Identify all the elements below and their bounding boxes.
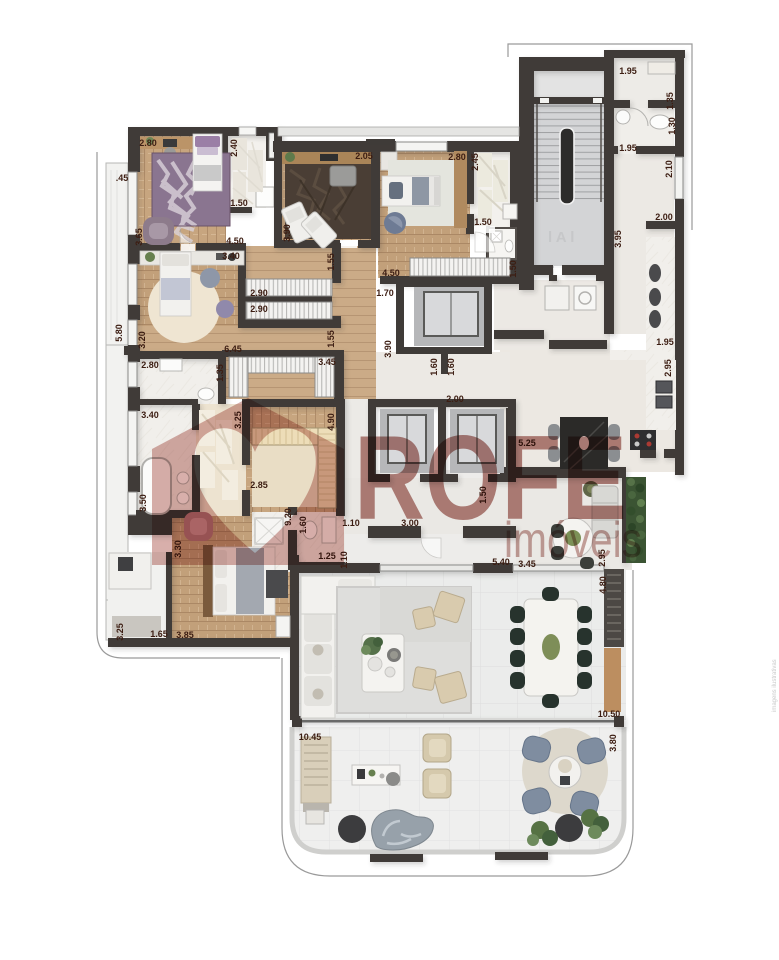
svg-text:1.55: 1.55 (326, 330, 336, 348)
svg-text:3.40: 3.40 (141, 410, 159, 420)
svg-text:1.70: 1.70 (376, 288, 394, 298)
svg-text:3.90: 3.90 (383, 340, 393, 358)
svg-text:2.80: 2.80 (139, 138, 157, 148)
svg-text:2.90: 2.90 (250, 304, 268, 314)
svg-text:2.10: 2.10 (664, 160, 674, 178)
svg-text:5.80: 5.80 (114, 324, 124, 342)
svg-text:3.45: 3.45 (318, 357, 336, 367)
svg-text:2.00: 2.00 (446, 394, 464, 404)
svg-text:2.40: 2.40 (229, 139, 239, 157)
svg-text:4.80: 4.80 (598, 576, 608, 594)
svg-text:2.90: 2.90 (250, 288, 268, 298)
svg-text:1.95: 1.95 (619, 66, 637, 76)
svg-text:2.95: 2.95 (663, 359, 673, 377)
svg-text:6.45: 6.45 (224, 344, 242, 354)
svg-text:2.80: 2.80 (448, 152, 466, 162)
svg-text:4.90: 4.90 (326, 413, 336, 431)
svg-text:3.50: 3.50 (138, 494, 148, 512)
svg-text:3.95: 3.95 (613, 230, 623, 248)
svg-text:1.55: 1.55 (326, 253, 336, 271)
svg-text:imóveis: imóveis (504, 512, 642, 568)
svg-text:10.45: 10.45 (299, 732, 322, 742)
svg-text:10.50: 10.50 (598, 709, 621, 719)
svg-text:1.60: 1.60 (429, 358, 439, 376)
svg-text:imagens ilustrativas: imagens ilustrativas (772, 659, 778, 712)
svg-text:1.95: 1.95 (619, 143, 637, 153)
svg-text:1.35: 1.35 (665, 92, 675, 110)
svg-text:3.25: 3.25 (115, 623, 125, 641)
svg-text:3.90: 3.90 (282, 224, 292, 242)
svg-text:.45: .45 (116, 173, 129, 183)
svg-text:l A l: l A l (548, 229, 574, 246)
svg-text:1.95: 1.95 (656, 337, 674, 347)
svg-text:3.65: 3.65 (134, 228, 144, 246)
svg-text:1.35: 1.35 (215, 364, 225, 382)
svg-text:1.30: 1.30 (667, 117, 677, 135)
svg-text:4.50: 4.50 (226, 236, 244, 246)
svg-text:2.05: 2.05 (355, 151, 373, 161)
svg-text:2.80: 2.80 (141, 360, 159, 370)
svg-text:3.40: 3.40 (222, 251, 240, 261)
svg-text:3.85: 3.85 (176, 630, 194, 640)
svg-text:1.60: 1.60 (446, 358, 456, 376)
svg-text:1.65: 1.65 (150, 629, 168, 639)
svg-text:2.00: 2.00 (655, 212, 673, 222)
svg-text:1.50: 1.50 (474, 217, 492, 227)
svg-text:3.80: 3.80 (608, 734, 618, 752)
svg-text:4.50: 4.50 (382, 268, 400, 278)
svg-text:3.20: 3.20 (137, 331, 147, 349)
svg-text:1.50: 1.50 (508, 260, 518, 278)
svg-text:2.85: 2.85 (250, 480, 268, 490)
svg-text:1.50: 1.50 (230, 198, 248, 208)
svg-text:2.45: 2.45 (470, 153, 480, 171)
